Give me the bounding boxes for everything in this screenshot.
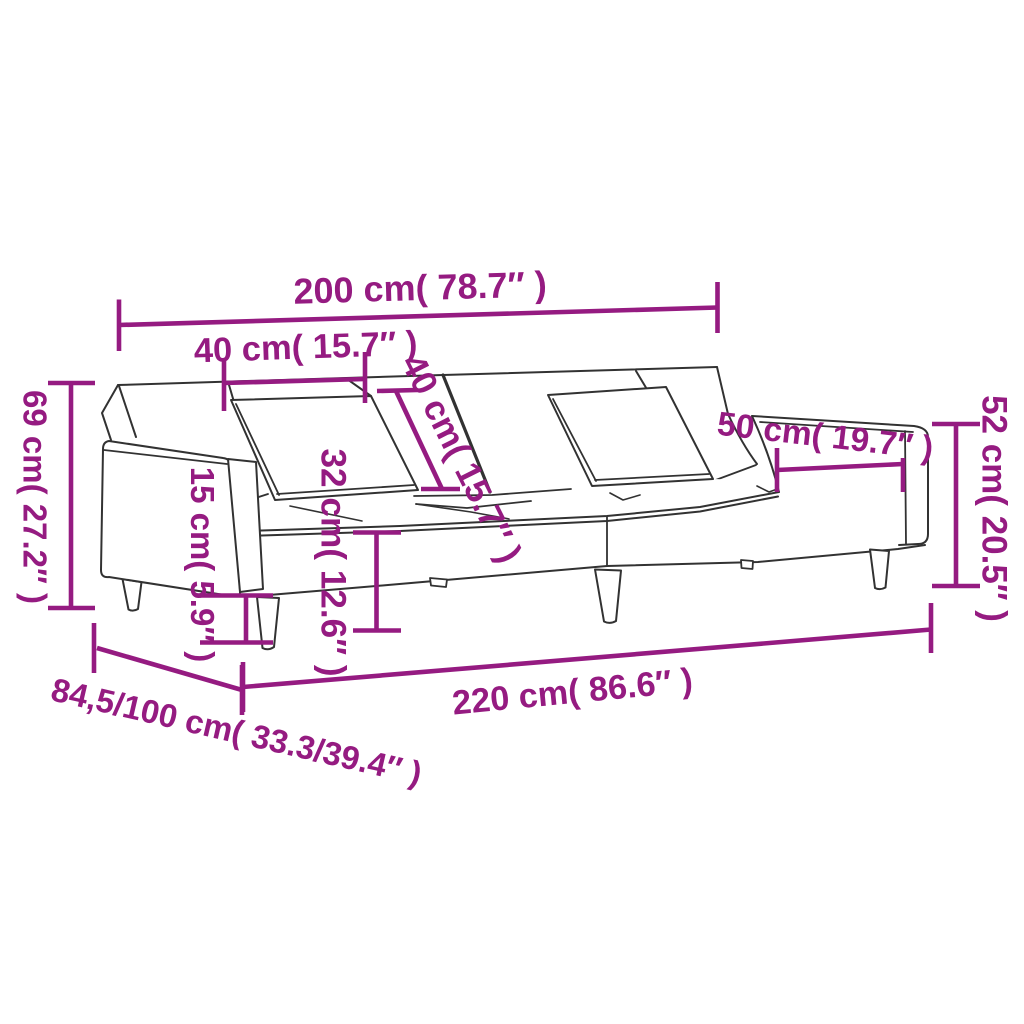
svg-text:40 cm( 15.7″ ): 40 cm( 15.7″ ) [193, 325, 418, 371]
svg-text:15 cm( 5.9″ ): 15 cm( 5.9″ ) [184, 467, 221, 663]
svg-text:69 cm( 27.2″ ): 69 cm( 27.2″ ) [17, 390, 54, 604]
svg-text:32 cm( 12.6″ ): 32 cm( 12.6″ ) [314, 448, 353, 676]
svg-text:52 cm( 20.5″ ): 52 cm( 20.5″ ) [975, 395, 1014, 622]
svg-text:200 cm( 78.7″ ): 200 cm( 78.7″ ) [293, 263, 547, 311]
